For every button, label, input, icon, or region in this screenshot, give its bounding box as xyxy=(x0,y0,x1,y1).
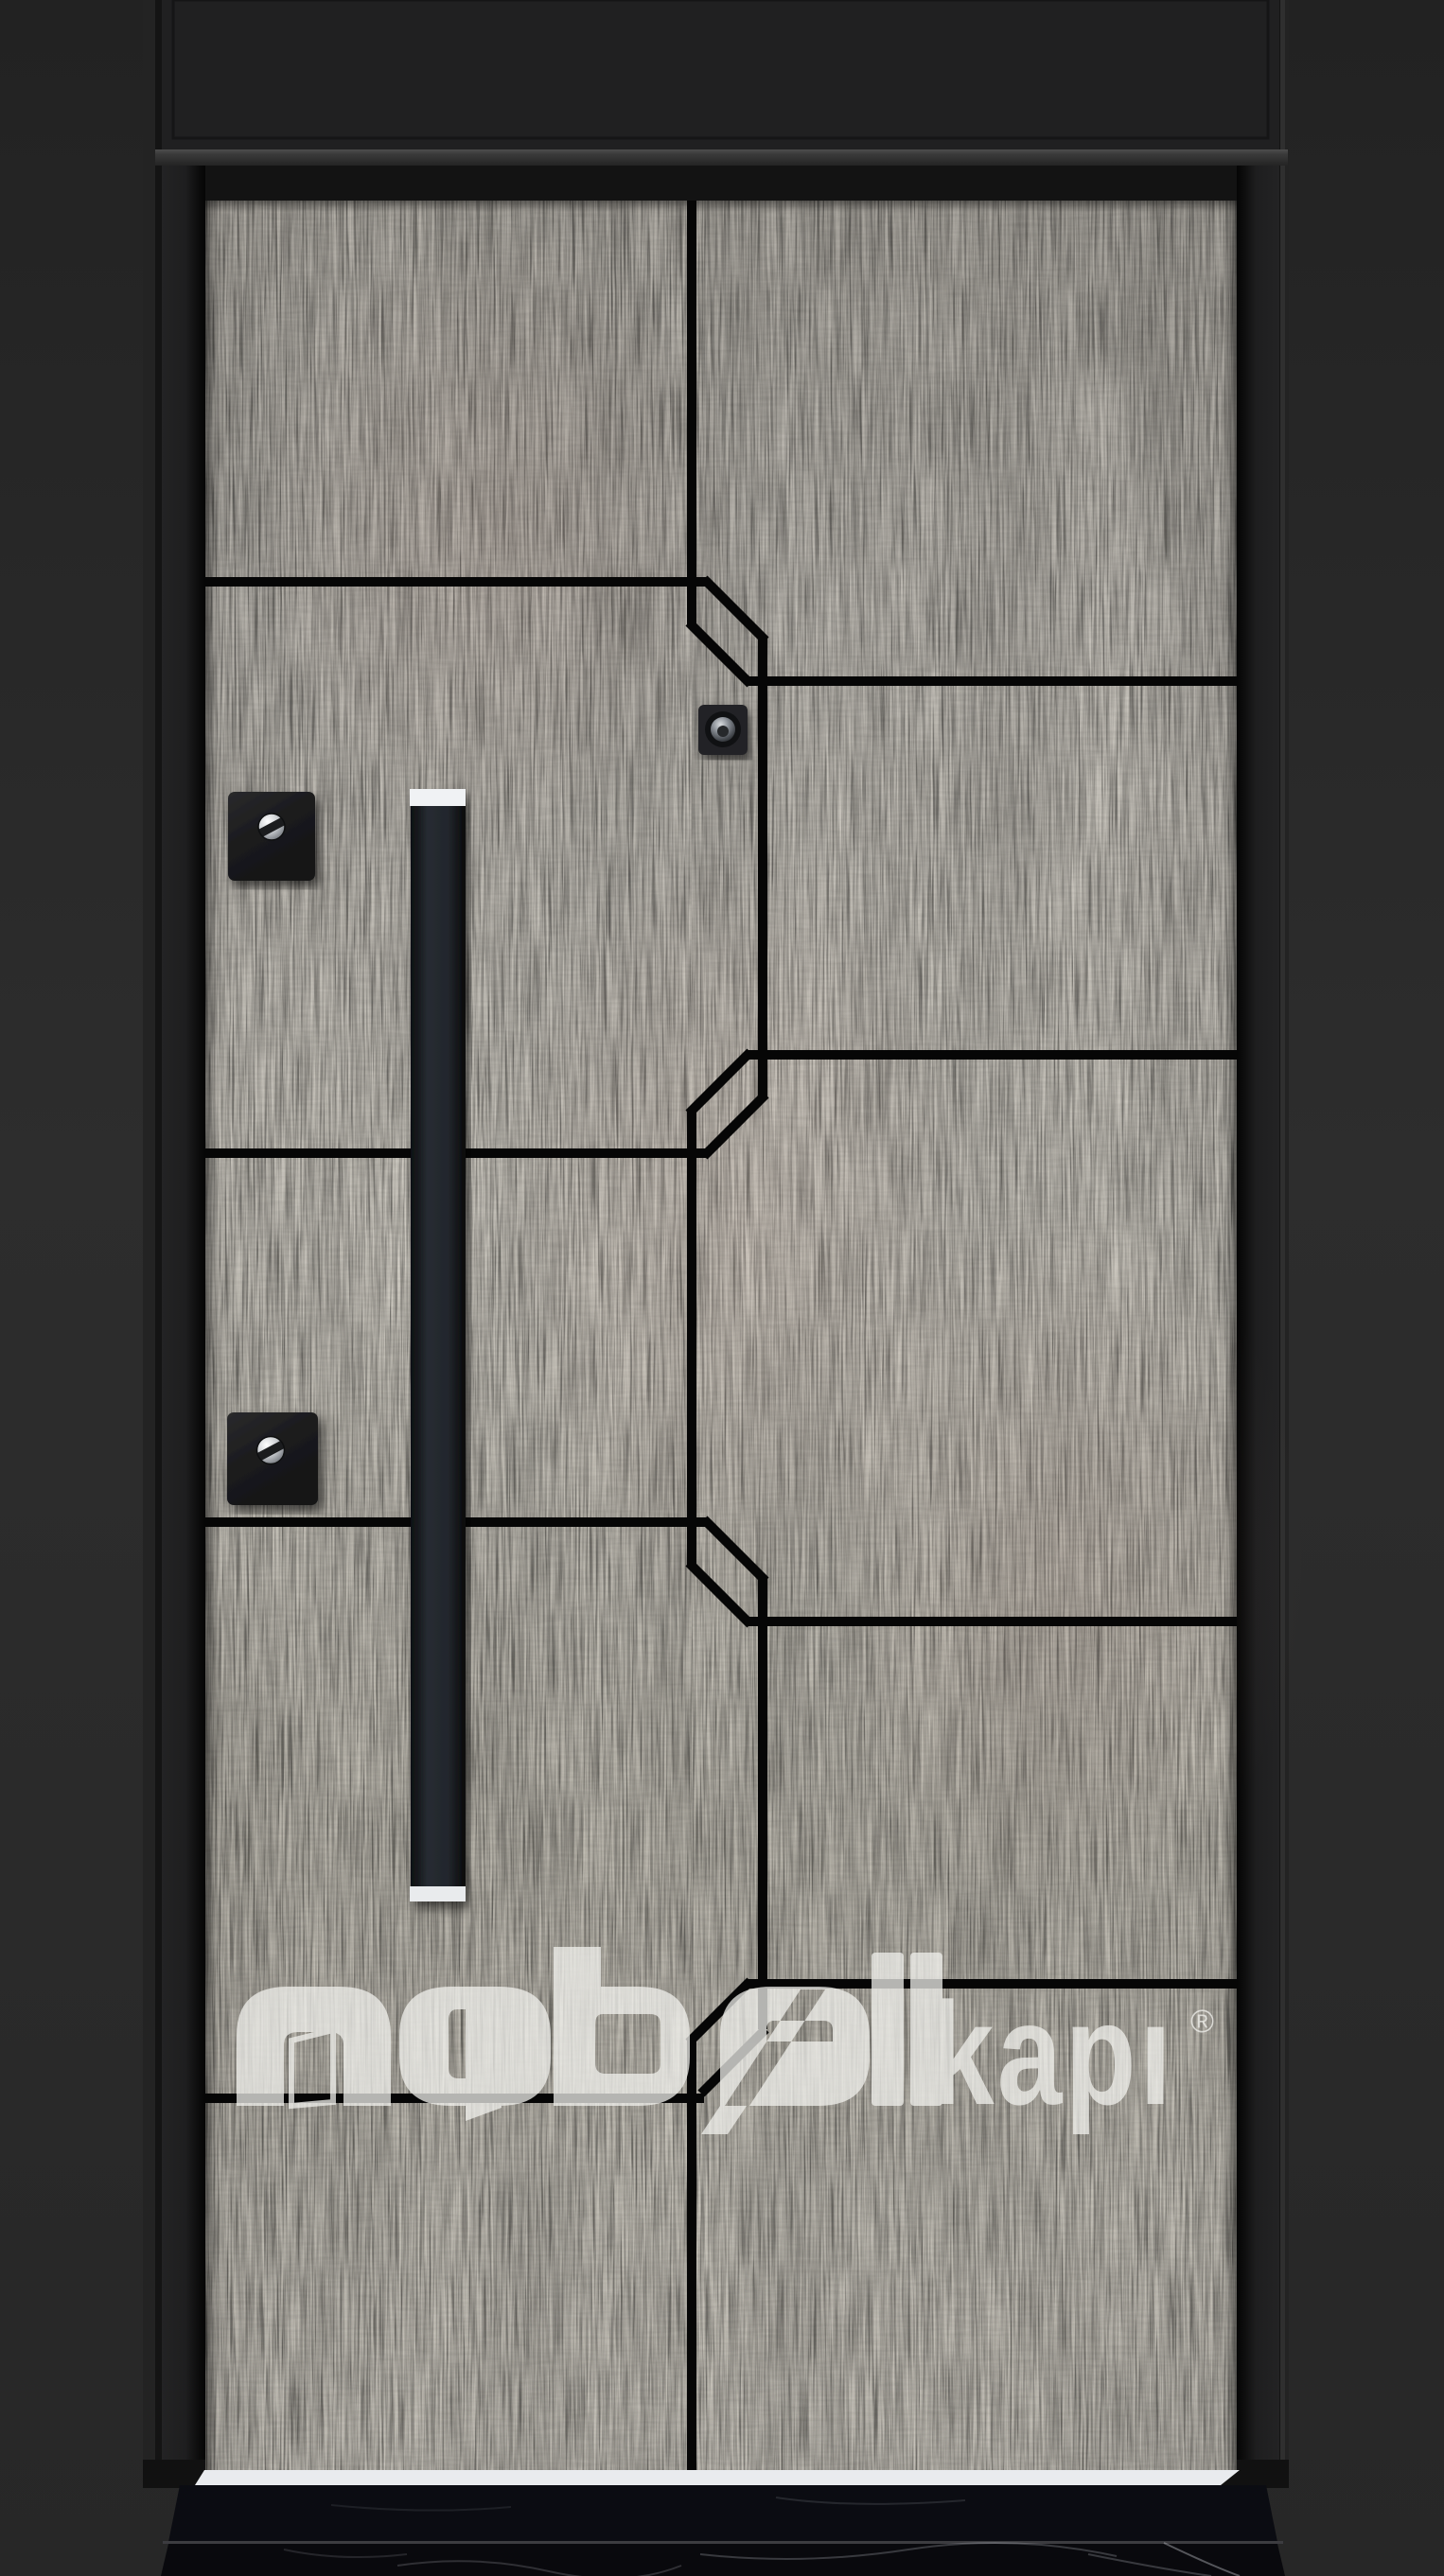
svg-text:kapı: kapı xyxy=(929,1972,1174,2135)
svg-text:®: ® xyxy=(1190,2004,1214,2040)
